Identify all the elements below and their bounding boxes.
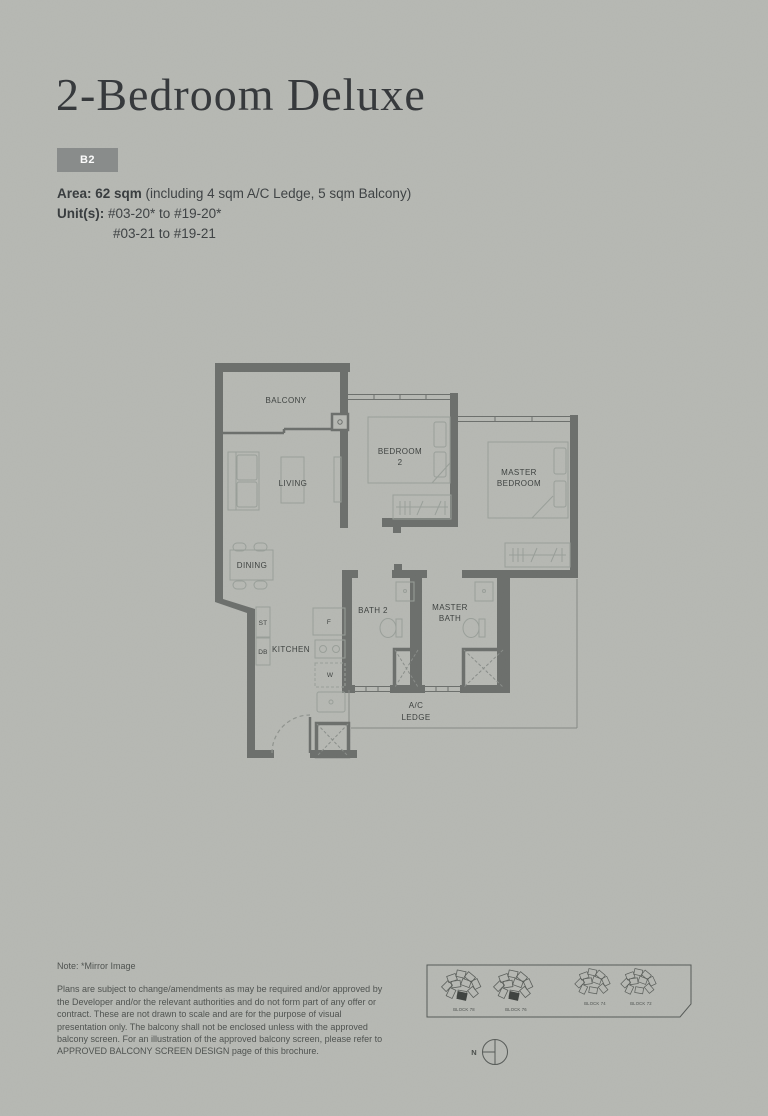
block-76-label: BLOCK 76 [505, 1007, 527, 1012]
room-label-bath2: BATH 2 [358, 606, 388, 615]
kitchen-fixtures [256, 607, 345, 712]
key-plan: BLOCK 78 BLOCK 76 BLOCK 74 BLOCK 72 N [420, 955, 700, 1075]
disclaimer-line-2: the Developer and/or the relevant author… [57, 996, 407, 1008]
window-master-bedroom [458, 417, 570, 422]
disclaimer-line-6: APPROVED BALCONY SCREEN DESIGN page of t… [57, 1045, 407, 1057]
units-line-2: #03-21 to #19-21 [113, 224, 411, 244]
room-label-bedroom2-line2: 2 [398, 458, 403, 467]
walls [215, 363, 578, 758]
units-range-2: #03-21 to #19-21 [113, 226, 216, 241]
room-label-master-bath-line1: MASTER [432, 603, 468, 612]
area-detail: (including 4 sqm A/C Ledge, 5 sqm Balcon… [142, 186, 411, 201]
room-label-dining: DINING [237, 561, 267, 570]
block-76-cluster [494, 970, 533, 1000]
fixture-label-fridge: F [327, 619, 331, 626]
block-72-cluster [621, 969, 656, 995]
column-box [332, 414, 348, 430]
room-label-living: LIVING [279, 479, 308, 488]
room-label-master-line1: MASTER [501, 468, 537, 477]
disclaimer-line-3: contract. These are not drawn to scale a… [57, 1008, 407, 1020]
room-label-kitchen: KITCHEN [272, 645, 310, 654]
room-label-master-bath-line2: BATH [439, 614, 461, 623]
floor-plan: BALCONY LIVING DINING KITCHEN BEDROOM 2 … [210, 355, 595, 765]
highlighted-unit-block76 [509, 992, 519, 1001]
block-74-cluster [575, 969, 610, 995]
area-label: Area: 62 sqm [57, 186, 142, 201]
mirror-image-note: Note: *Mirror Image [57, 960, 407, 972]
sliding-door [223, 429, 332, 433]
block-74-label: BLOCK 74 [584, 1001, 606, 1006]
north-compass: N [471, 1040, 507, 1065]
units-line-1: Unit(s): #03-20* to #19-20* [57, 204, 411, 224]
block-78-cluster [442, 970, 481, 1000]
louvre-master-bath [425, 687, 460, 692]
room-label-master-line2: BEDROOM [497, 479, 541, 488]
page-title: 2-Bedroom Deluxe [56, 68, 426, 121]
room-label-ac-ledge-line1: A/C [409, 701, 424, 710]
fixture-label-store: ST [259, 620, 268, 627]
entry-door-swing [272, 715, 310, 753]
brochure-page: 2-Bedroom Deluxe B2 Area: 62 sqm (includ… [0, 0, 768, 1116]
louvre-bath2 [355, 687, 390, 692]
area-line: Area: 62 sqm (including 4 sqm A/C Ledge,… [57, 184, 411, 204]
wardrobe-master [505, 543, 570, 567]
north-label: N [471, 1048, 476, 1057]
window-bedroom2 [348, 395, 450, 400]
room-label-ac-ledge-line2: LEDGE [401, 713, 430, 722]
block-72-label: BLOCK 72 [630, 1001, 652, 1006]
units-label: Unit(s): [57, 206, 104, 221]
tv-console [334, 457, 341, 502]
unit-type-badge: B2 [57, 148, 118, 172]
room-label-balcony: BALCONY [265, 396, 306, 405]
room-label-bedroom2-line1: BEDROOM [378, 447, 422, 456]
disclaimer-line-5: balcony screen. For an illustration of t… [57, 1033, 407, 1045]
highlighted-unit-block78 [457, 992, 467, 1001]
fixture-label-washer: W [327, 672, 334, 679]
disclaimer-line-1: Plans are subject to change/amendments a… [57, 983, 407, 995]
block-78-label: BLOCK 78 [453, 1007, 475, 1012]
footer-note: Note: *Mirror Image Plans are subject to… [57, 960, 407, 1058]
units-range-1: #03-20* to #19-20* [108, 206, 221, 221]
disclaimer-line-4: presentation only. The balcony shall not… [57, 1021, 407, 1033]
sofa [228, 452, 259, 510]
unit-info: Area: 62 sqm (including 4 sqm A/C Ledge,… [57, 184, 411, 244]
fixture-label-db: DB [258, 649, 267, 656]
wardrobe-bedroom2 [393, 495, 451, 519]
